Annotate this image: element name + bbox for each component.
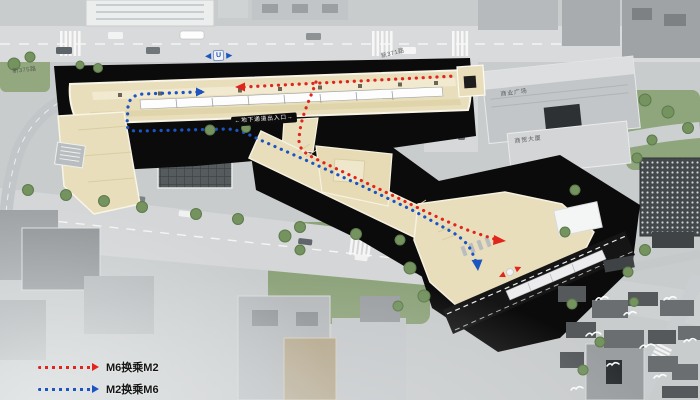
legend-row-m6-to-m2: M6换乘M2: [38, 356, 159, 378]
left-arrow-icon: ◀: [205, 52, 211, 60]
blue-dotted-arrow-icon: [38, 388, 92, 391]
station-transfer-rendering: 新375路 新371路 ←地下通道出入口→ 商业广场 商贸大厦 ◀ U ▶ ◀ …: [0, 0, 700, 400]
checker-tower: [640, 158, 700, 236]
legend-label: M6换乘M2: [106, 359, 159, 375]
transfer-legend: M6换乘M2 M2换乘M6: [38, 356, 159, 400]
m2-bidirectional-marker: ◀ U ▶: [205, 50, 233, 62]
legend-row-m2-to-m6: M2换乘M6: [38, 378, 159, 400]
scene-render: [0, 0, 700, 400]
legend-label: M2换乘M6: [106, 381, 159, 397]
metro-logo-icon: U: [213, 50, 224, 61]
red-dotted-arrow-icon: [38, 366, 92, 369]
stair-entrance: [55, 142, 86, 168]
right-arrow-icon: ▶: [226, 51, 232, 59]
